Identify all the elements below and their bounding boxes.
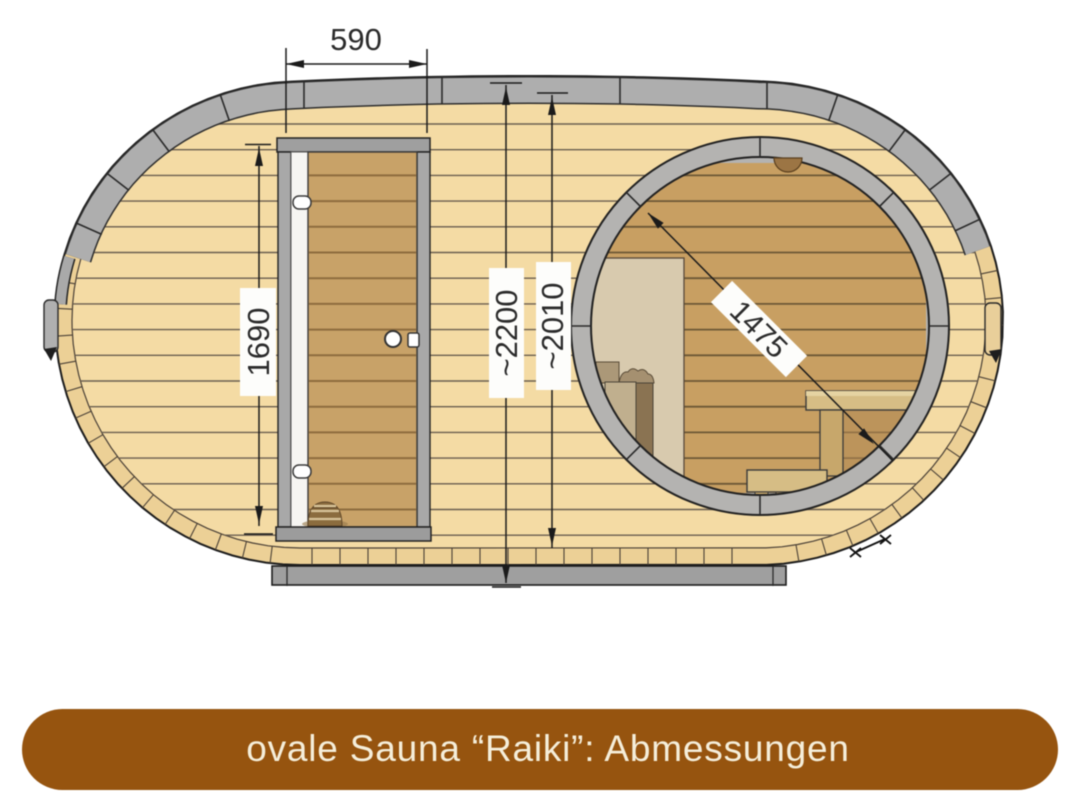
svg-text:~2200: ~2200 [489,289,524,376]
svg-text:1690: 1690 [241,308,276,377]
svg-text:~2010: ~2010 [535,282,570,369]
svg-text:590: 590 [330,22,382,57]
